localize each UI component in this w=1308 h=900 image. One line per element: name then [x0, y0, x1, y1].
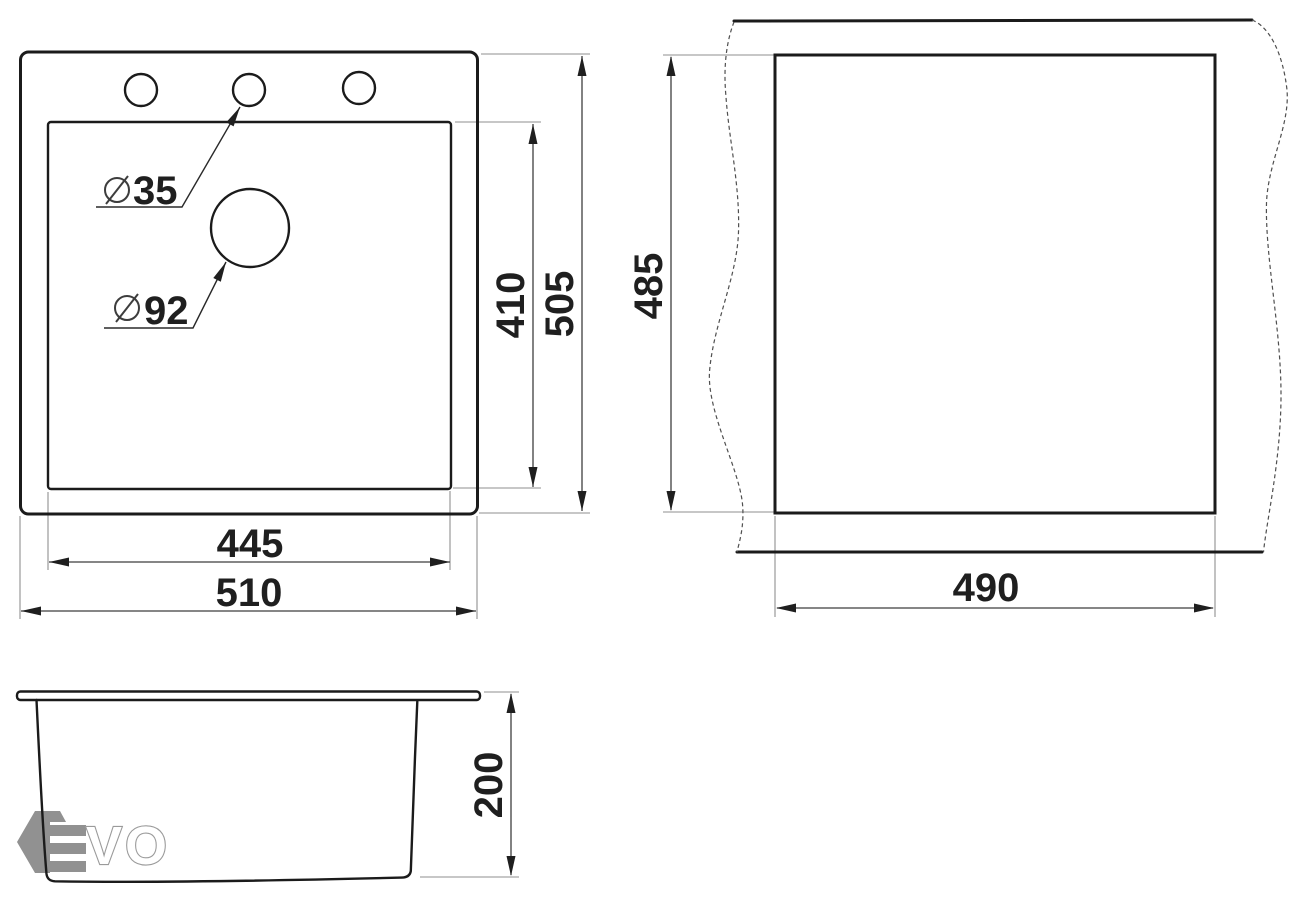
dim-445-text: 445 [217, 522, 284, 566]
arrow-490-left [776, 604, 796, 613]
label-hole-35: 35 [133, 169, 178, 213]
plan-view: 35 92 410 505 445 510 [20, 52, 590, 619]
dim-485-text: 485 [627, 253, 671, 320]
arrow-200-down [507, 856, 516, 876]
arrow-410-down [529, 467, 538, 487]
diameter-symbol-icon [115, 294, 139, 322]
countertop-break-line-right [1252, 20, 1287, 552]
arrow-510-left [21, 607, 41, 616]
arrow-485-down [667, 491, 676, 511]
arrow-445-right [430, 558, 450, 567]
evo-watermark: VO [17, 811, 170, 876]
faucet-hole-right [343, 72, 375, 104]
dim-200-text: 200 [467, 752, 511, 819]
sink-rim [17, 692, 480, 701]
countertop-break-line-left [709, 22, 743, 552]
cutout-view: 485 490 [627, 20, 1287, 617]
sink-technical-drawing: VO [0, 0, 1308, 900]
watermark-e-bar-top [50, 825, 86, 836]
arrow-505-up [578, 56, 587, 76]
arrow-490-right [1194, 604, 1214, 613]
technical-drawing-page: VO [0, 0, 1308, 900]
leader-92-arrow [213, 262, 226, 282]
watermark-e-bar-middle [50, 843, 86, 854]
arrow-410-up [529, 124, 538, 144]
sink-bowl-edge [48, 122, 451, 489]
faucet-hole-left [125, 74, 157, 106]
arrow-510-right [456, 607, 476, 616]
arrow-445-left [49, 558, 69, 567]
watermark-text: VO [86, 816, 170, 876]
dim-505-text: 505 [538, 271, 582, 338]
dim-490-text: 490 [953, 566, 1020, 610]
diameter-symbol-icon [105, 176, 129, 204]
dim-510-text: 510 [216, 571, 283, 615]
cutout-opening [775, 55, 1215, 513]
faucet-hole-center [233, 74, 265, 106]
arrow-505-down [578, 491, 587, 511]
leader-35-arrow [226, 107, 240, 126]
watermark-e-bar-bottom [50, 861, 86, 872]
label-hole-92: 92 [144, 289, 189, 333]
dim-410-text: 410 [489, 272, 533, 339]
arrow-485-up [667, 56, 676, 76]
arrow-200-up [507, 693, 516, 713]
drain-hole [211, 189, 289, 267]
countertop-top-edge [734, 20, 1252, 21]
